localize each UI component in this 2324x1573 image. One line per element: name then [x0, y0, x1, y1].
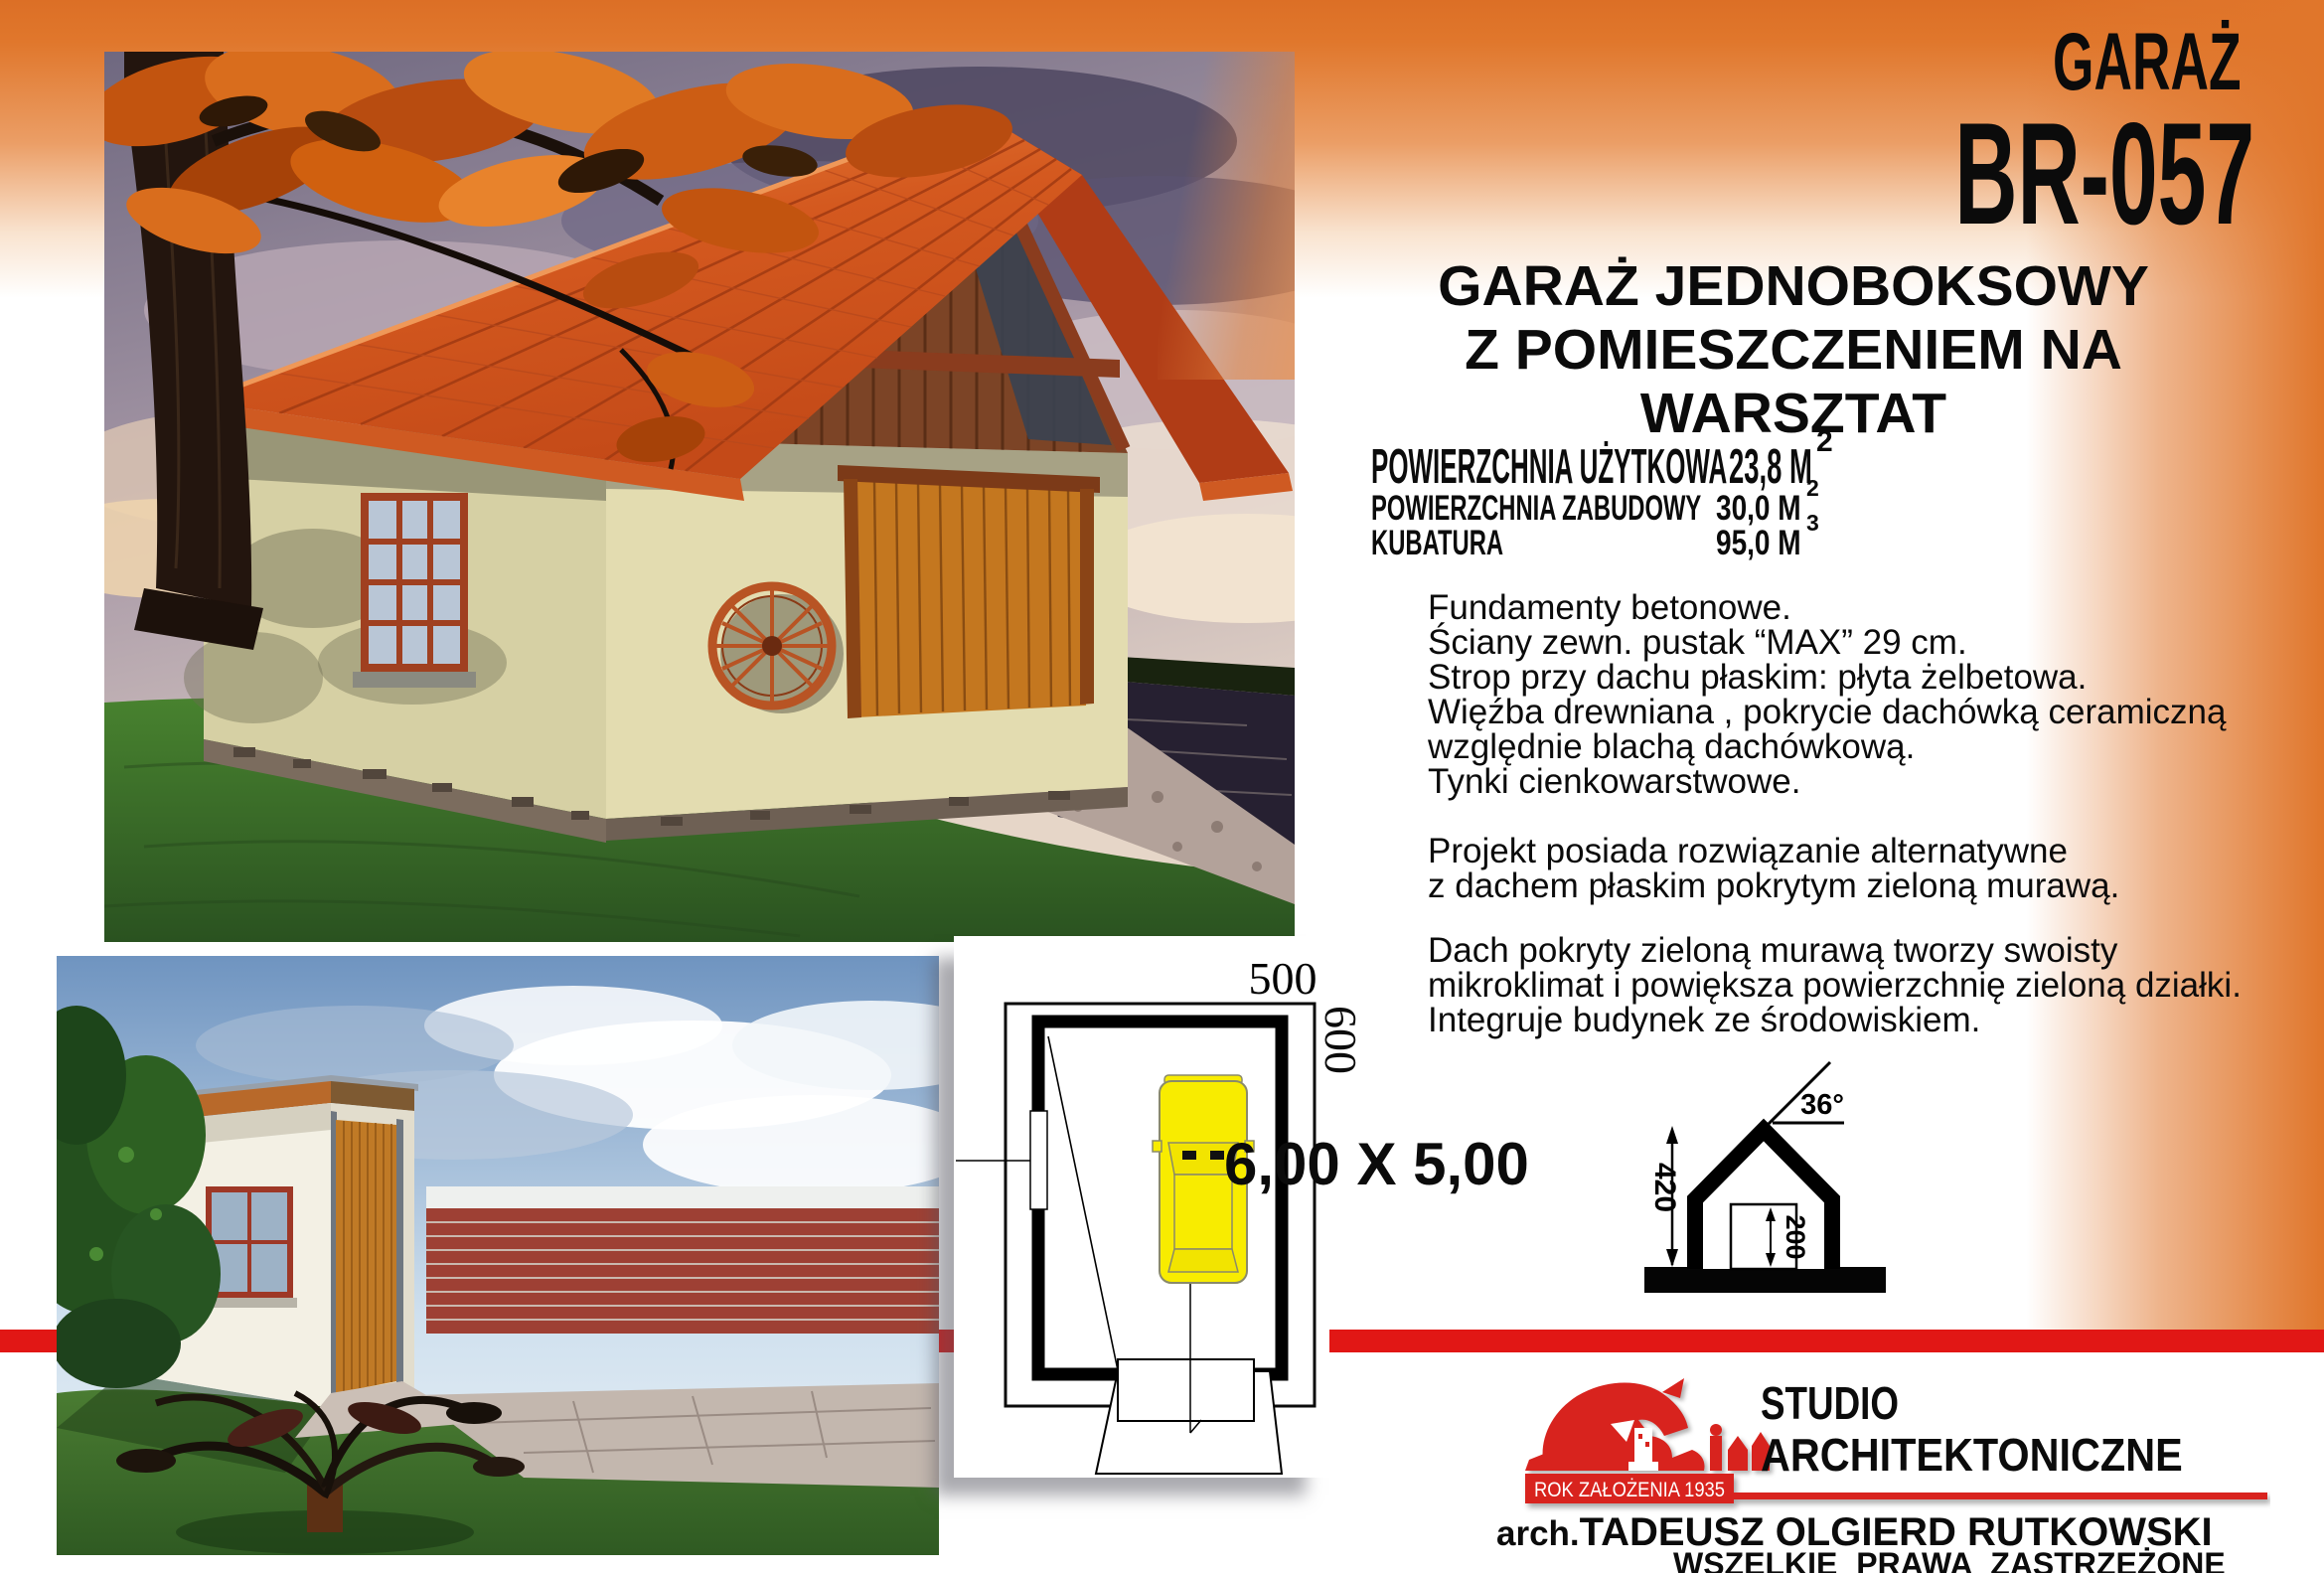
volume-sup: 3 — [1806, 512, 1819, 535]
description-line: Strop przy dachu płaskim: płyta żelbetow… — [1428, 660, 2324, 695]
render-perspective-flat-roof — [57, 956, 939, 1555]
project-subtitle: GARAŻ JEDNOBOKSOWY Z POMIESZCZENIEM NA W… — [1381, 254, 2206, 445]
section-base — [1644, 1267, 1886, 1293]
studio-name-line1: STUDIO — [1761, 1380, 1899, 1426]
usable-area-sup: 2 — [1816, 427, 1833, 457]
founded-text: ROK ZAŁOŻENIA 1935 — [1534, 1479, 1725, 1501]
project-description: Fundamenty betonowe. Ściany zewn. pustak… — [1428, 590, 2324, 1037]
description-line: Integruje budynek ze środowiskiem. — [1428, 1003, 2324, 1037]
roof-angle-label: 36° — [1800, 1089, 1844, 1121]
door-planks-2 — [344, 1121, 391, 1391]
project-code: BR-057 — [1954, 101, 2254, 246]
studio-name-line2: ARCHITEKTONICZNE — [1761, 1432, 2183, 1478]
description-line: Tynki cienkowarstwowe. — [1428, 764, 2324, 799]
side-window — [353, 493, 476, 688]
door-frame-right — [396, 1119, 403, 1383]
plan-dimensions-text: 6,00 X 5,00 — [1224, 1135, 1529, 1194]
footer-red-line — [1734, 1493, 2267, 1499]
description-line: Fundamenty betonowe. — [1428, 590, 2324, 625]
car-mirror-left — [1153, 1141, 1162, 1152]
door-jamb-right — [1080, 489, 1094, 705]
volume-value: 95,0 M — [1716, 526, 1801, 560]
plan-window — [1030, 1111, 1047, 1209]
description-line: Dach pokryty zieloną murawą tworzy swois… — [1428, 933, 2324, 968]
logo-figure — [1525, 1378, 1770, 1471]
project-sheet: GARAŻ BR-057 GARAŻ JEDNOBOKSOWY Z POMIES… — [0, 0, 2324, 1573]
built-area-value: 30,0 M — [1716, 491, 1801, 526]
description-paragraph: Fundamenty betonowe. Ściany zewn. pustak… — [1428, 590, 2324, 799]
plan-door-leaf — [1118, 1359, 1254, 1421]
description-line: Projekt posiada rozwiązanie alternatywne — [1428, 834, 2324, 868]
description-line: mikroklimat i powiększa powierzchnię zie… — [1428, 968, 2324, 1003]
description-line: Ściany zewn. pustak “MAX” 29 cm. — [1428, 625, 2324, 660]
architect-prefix: arch. — [1496, 1514, 1580, 1553]
dim-420-arrow-top — [1666, 1126, 1678, 1144]
volume-label: KUBATURA — [1371, 526, 1503, 560]
plan-depth-label: 600 — [1317, 1006, 1363, 1074]
subtitle-line: GARAŻ JEDNOBOKSOWY — [1381, 254, 2206, 318]
built-area-sup: 2 — [1806, 477, 1819, 500]
built-area-label: POWIERZCHNIA ZABUDOWY — [1371, 491, 1701, 526]
roof-section-diagram: 420 200 36° — [1620, 1038, 1908, 1307]
banner-photo-fade — [1158, 52, 1295, 380]
plan-width-label: 500 — [1249, 953, 1317, 1004]
description-paragraph: Projekt posiada rozwiązanie alternatywne… — [1428, 834, 2324, 903]
usable-area-label: POWIERZCHNIA UŻYTKOWA — [1371, 443, 1727, 492]
brick-wall-cap — [426, 1186, 939, 1210]
usable-area-value: 23,8 M — [1729, 443, 1812, 492]
floor-plan: 500 — [954, 936, 1329, 1478]
window-sill — [353, 672, 476, 688]
brick-wall — [426, 1208, 939, 1334]
subtitle-line: WARSZTAT — [1381, 382, 2206, 445]
dim-420-arrow-bottom — [1666, 1249, 1678, 1267]
subtitle-line: Z POMIESZCZENIEM NA — [1381, 318, 2206, 382]
description-paragraph: Dach pokryty zieloną murawą tworzy swois… — [1428, 933, 2324, 1037]
description-line: z dachem płaskim pokrytym zieloną murawą… — [1428, 868, 2324, 903]
render-gable-svg — [104, 52, 1295, 942]
door-height-label: 200 — [1781, 1214, 1810, 1259]
description-line: względnie blachą dachówkową. — [1428, 729, 2324, 764]
render-flat-svg — [57, 956, 939, 1555]
category-title: GARAŻ — [2054, 22, 2242, 103]
rights-text: WSZELKIE PRAWA ZASTRZEŻONE — [1673, 1548, 2226, 1573]
render-perspective-gable — [104, 52, 1295, 942]
ridge-height-label: 420 — [1648, 1163, 1681, 1212]
description-line: Więźba drewniana , pokrycie dachówką cer… — [1428, 695, 2324, 729]
garage-door-2 — [336, 1120, 396, 1393]
floor-plan-card: 500 — [954, 936, 1329, 1478]
